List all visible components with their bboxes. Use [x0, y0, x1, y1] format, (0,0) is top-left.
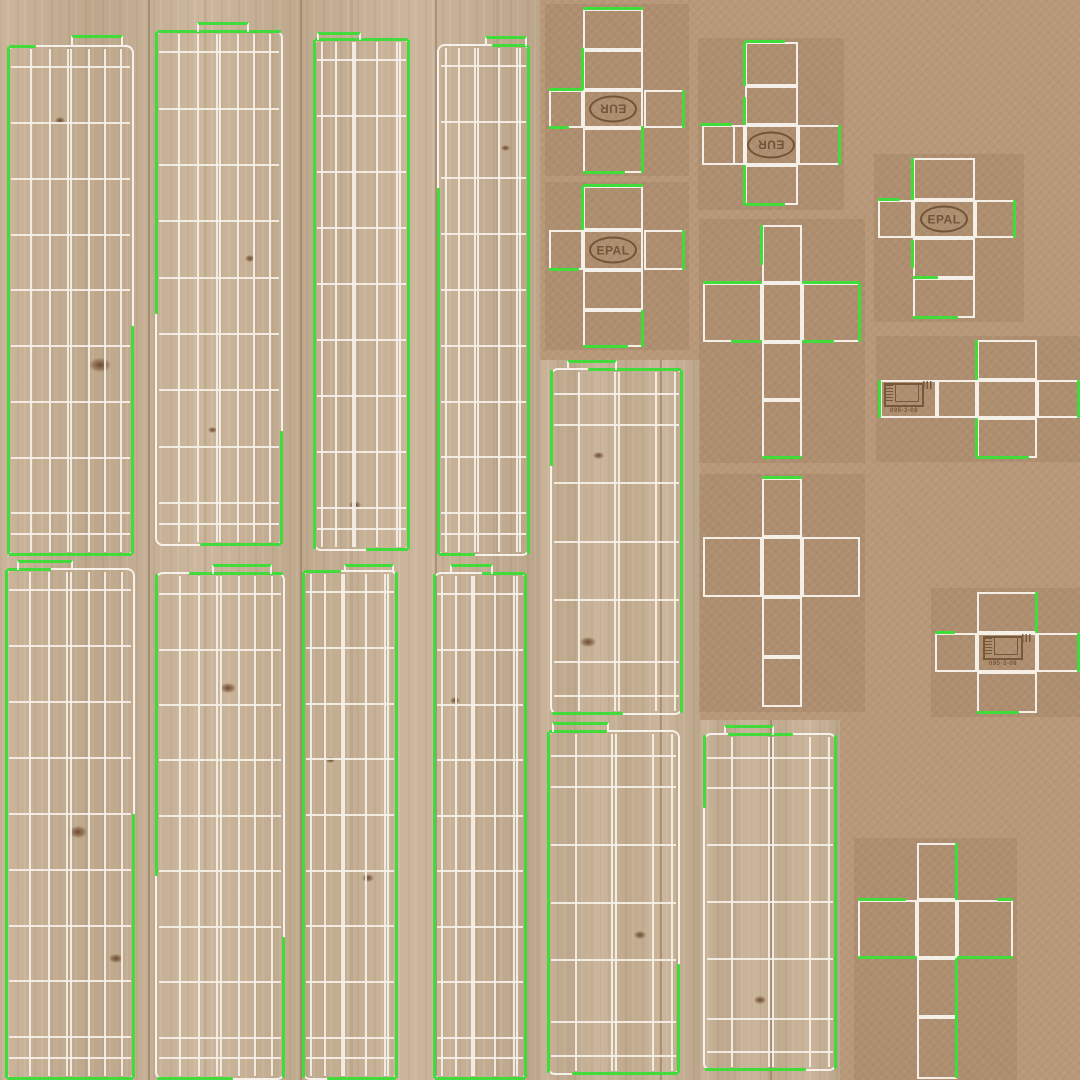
uv-grid-line-vertical: [458, 48, 460, 552]
uv-grid-line-horizontal: [306, 591, 394, 593]
uv-grid-line-horizontal: [159, 704, 281, 706]
uv-grid-line-horizontal: [441, 456, 526, 458]
uv-grid-line-horizontal: [441, 533, 526, 535]
uv-grid-line-vertical: [399, 42, 401, 547]
uv-grid-line-vertical: [104, 49, 106, 552]
uv-seam-edge: [583, 184, 643, 187]
plank-uv-top-tab: [450, 564, 493, 574]
uv-seam-edge: [550, 370, 553, 466]
uv-grid-line-vertical: [271, 576, 273, 1076]
uv-seam-edge: [407, 40, 410, 549]
eur-stamp: EUR: [747, 132, 795, 159]
uv-grid-line-horizontal: [441, 289, 526, 291]
uv-grid-line-horizontal: [707, 757, 833, 759]
plank-uv-island: [703, 733, 837, 1071]
uv-grid-line-horizontal: [551, 1055, 676, 1057]
uv-seam-edge: [955, 958, 958, 1078]
uv-seam-edge: [975, 418, 978, 458]
uv-grid-line-horizontal: [437, 815, 523, 817]
block-uv-cell: [977, 672, 1037, 713]
block-uv-cell: [583, 310, 643, 347]
uv-grid-line-vertical: [376, 42, 378, 547]
uv-grid-line-horizontal: [9, 869, 131, 871]
cert-stamp-inner-square: [994, 637, 1018, 655]
uv-grid-line-horizontal: [159, 981, 281, 983]
block-uv-cell: [957, 900, 1013, 958]
block-uv-cell: [878, 200, 913, 238]
uv-seam-edge: [5, 570, 8, 1078]
uv-grid-line-vertical: [494, 576, 496, 1076]
block-uv-cell: [549, 230, 583, 270]
plank-uv-top-tab: [552, 722, 609, 732]
plank-uv-island: [433, 572, 527, 1080]
block-uv-cell: [745, 165, 798, 205]
uv-grid-line-horizontal: [9, 701, 131, 703]
uv-seam-edge: [132, 814, 135, 1078]
uv-seam-edge: [955, 843, 958, 900]
uv-grid-line-horizontal: [437, 1057, 523, 1059]
uv-grid-line-horizontal: [317, 339, 406, 341]
uv-grid-line-horizontal: [159, 502, 279, 504]
block-uv-cell: [703, 283, 762, 342]
uv-seam-edge: [313, 40, 316, 549]
uv-seam-edge: [302, 572, 305, 1078]
uv-grid-line-horizontal: [437, 704, 523, 706]
uv-seam-edge: [802, 340, 834, 343]
uv-seam-edge: [527, 46, 530, 554]
uv-grid-line-vertical: [473, 576, 475, 1076]
uv-seam-edge: [583, 7, 643, 10]
uv-grid-line-horizontal: [159, 164, 279, 166]
plank-uv-top-tab: [344, 564, 394, 572]
uv-grid-line-horizontal: [707, 1018, 833, 1020]
plank-uv-island: [313, 38, 410, 551]
uv-grid-line-horizontal: [11, 457, 130, 459]
uv-seam-edge: [682, 230, 685, 270]
uv-seam-edge: [547, 732, 550, 1073]
uv-grid-line-vertical: [354, 42, 356, 547]
epal-stamp: EPAL: [589, 237, 637, 264]
uv-seam-edge: [572, 1072, 678, 1075]
uv-grid-line-vertical: [70, 572, 72, 1076]
block-uv-cell: [762, 478, 802, 537]
cert-stamp-lines: [886, 385, 893, 401]
uv-seam-edge: [524, 574, 527, 1078]
uv-grid-line-horizontal: [11, 533, 130, 535]
block-uv-cell: [1037, 380, 1080, 418]
uv-seam-edge: [838, 125, 841, 165]
uv-grid-line-horizontal: [306, 925, 394, 927]
uv-seam-edge: [743, 97, 746, 125]
block-uv-cell: [917, 843, 957, 900]
uv-grid-line-horizontal: [11, 178, 130, 180]
uv-grid-line-horizontal: [437, 926, 523, 928]
uv-grid-line-horizontal: [306, 1057, 394, 1059]
uv-grid-line-vertical: [216, 34, 218, 542]
uv-grid-line-horizontal: [707, 901, 833, 903]
uv-grid-line-vertical: [477, 48, 479, 552]
block-uv-cell: [917, 1017, 957, 1079]
uv-seam-edge: [913, 276, 938, 279]
uv-seam-edge: [641, 310, 644, 347]
uv-grid-line-horizontal: [441, 233, 526, 235]
uv-grid-line-horizontal: [159, 649, 281, 651]
uv-seam-edge: [997, 898, 1013, 901]
uv-grid-line-vertical: [387, 574, 389, 1076]
uv-grid-line-horizontal: [159, 759, 281, 761]
uv-grid-line-horizontal: [707, 958, 833, 960]
uv-grid-line-vertical: [335, 42, 337, 547]
uv-grid-line-vertical: [121, 572, 123, 1076]
uv-grid-line-horizontal: [437, 1037, 523, 1039]
uv-seam-edge: [858, 898, 906, 901]
uv-grid-line-horizontal: [159, 1037, 281, 1039]
uv-grid-line-vertical: [498, 48, 500, 552]
plank-uv-island: [7, 45, 134, 556]
plank-uv-island: [155, 572, 285, 1080]
uv-seam-edge: [549, 88, 583, 91]
uv-grid-line-horizontal: [437, 870, 523, 872]
cert-stamp-inner-square: [895, 384, 919, 402]
uv-grid-line-vertical: [269, 34, 271, 542]
uv-grid-line-horizontal: [551, 844, 676, 846]
uv-grid-line-vertical: [197, 34, 199, 542]
uv-grid-line-vertical: [310, 574, 312, 1076]
uv-grid-line-vertical: [254, 576, 256, 1076]
block-uv-cell: [583, 9, 643, 50]
uv-grid-line-horizontal: [554, 541, 679, 543]
uv-grid-line-horizontal: [437, 649, 523, 651]
uv-grid-line-horizontal: [9, 980, 131, 982]
plank-uv-top-tab: [17, 560, 73, 570]
uv-grid-line-vertical: [237, 34, 239, 542]
uv-grid-line-horizontal: [159, 277, 279, 279]
uv-seam-edge: [9, 553, 132, 556]
uv-grid-line-vertical: [253, 34, 255, 542]
uv-seam-edge: [911, 158, 914, 200]
uv-grid-line-horizontal: [441, 177, 526, 179]
uv-grid-line-vertical: [104, 572, 106, 1076]
block-uv-cell: [913, 238, 975, 278]
uv-seam-edge: [282, 937, 285, 1078]
uv-seam-edge: [745, 40, 785, 43]
uv-seam-edge: [680, 370, 683, 713]
uv-seam-edge: [581, 186, 584, 230]
uv-grid-line-vertical: [343, 574, 345, 1076]
uv-seam-edge: [395, 572, 398, 1078]
uv-grid-line-horizontal: [554, 482, 679, 484]
uv-grid-line-vertical: [516, 576, 518, 1076]
uv-seam-edge: [280, 431, 283, 544]
uv-grid-line-vertical: [179, 576, 181, 1076]
block-uv-cell: [917, 958, 957, 1017]
uv-grid-line-horizontal: [9, 1057, 131, 1059]
uv-grid-line-vertical: [88, 49, 90, 552]
uv-seam-edge: [802, 281, 860, 284]
plank-uv-island: [155, 30, 283, 546]
uv-grid-line-vertical: [120, 49, 122, 552]
uv-grid-line-horizontal: [9, 589, 131, 591]
plank-uv-island: [547, 730, 680, 1075]
plank-uv-island: [437, 44, 530, 556]
cert-stamp-code: 095-3-08: [884, 408, 924, 414]
uv-seam-edge: [641, 126, 644, 173]
block-uv-cell: [733, 125, 745, 165]
uv-seam-edge: [743, 165, 746, 205]
block-uv-cell: [975, 200, 1015, 238]
uv-seam-edge: [155, 574, 158, 876]
uv-grid-line-horizontal: [159, 926, 281, 928]
plank-uv-top-tab: [724, 725, 774, 735]
uv-grid-line-horizontal: [9, 645, 131, 647]
uv-grid-line-horizontal: [159, 446, 279, 448]
uv-seam-edge: [200, 543, 281, 546]
uv-grid-line-horizontal: [11, 401, 130, 403]
uv-grid-line-horizontal: [554, 393, 679, 395]
block-uv-cell: [913, 158, 975, 200]
uv-grid-line-horizontal: [9, 757, 131, 759]
uv-grid-line-horizontal: [306, 703, 394, 705]
uv-grid-line-horizontal: [306, 870, 394, 872]
uv-grid-line-vertical: [324, 574, 326, 1076]
uv-grid-line-horizontal: [441, 65, 526, 67]
uv-grid-line-horizontal: [317, 227, 406, 229]
uv-grid-line-horizontal: [551, 902, 676, 904]
uv-seam-edge: [682, 90, 685, 128]
uv-grid-line-horizontal: [306, 647, 394, 649]
uv-seam-edge: [745, 203, 785, 206]
block-uv-cell: [977, 592, 1037, 633]
uv-grid-line-horizontal: [554, 661, 679, 663]
uv-seam-edge: [1013, 200, 1016, 238]
uv-seam-edge: [957, 956, 1013, 959]
uv-grid-line-horizontal: [317, 395, 406, 397]
block-uv-cell: [762, 657, 802, 707]
uv-seam-edge: [549, 268, 579, 271]
block-uv-cell: [644, 90, 685, 128]
uv-grid-line-horizontal: [554, 599, 679, 601]
block-uv-cell: [745, 86, 798, 125]
uv-grid-line-horizontal: [554, 424, 679, 426]
uv-grid-line-vertical: [220, 576, 222, 1076]
uv-grid-line-horizontal: [11, 66, 130, 68]
block-uv-cell: [762, 225, 802, 283]
uv-grid-line-horizontal: [317, 528, 406, 530]
uv-grid-line-vertical: [219, 34, 221, 542]
plank-uv-top-tab: [71, 35, 123, 47]
uv-grid-line-vertical: [238, 576, 240, 1076]
block-uv-cell: [583, 50, 643, 90]
plank-uv-island: [302, 570, 398, 1080]
uv-grid-line-horizontal: [707, 787, 833, 789]
uv-seam-edge: [703, 281, 762, 284]
uv-grid-line-vertical: [321, 42, 323, 547]
cert-stamp-code: 095-3-08: [983, 661, 1023, 667]
block-uv-cell: [937, 380, 977, 418]
plank-uv-top-tab: [212, 564, 272, 574]
block-uv-cell: [1037, 633, 1080, 672]
block-uv-cell: [549, 90, 583, 128]
uv-seam-edge: [583, 171, 625, 174]
uv-grid-line-vertical: [384, 574, 386, 1076]
uv-grid-line-vertical: [178, 34, 180, 542]
block-uv-cell: [977, 380, 1037, 418]
uv-grid-line-vertical: [513, 576, 515, 1076]
uv-grid-line-vertical: [67, 49, 69, 552]
block-uv-cell: [935, 633, 977, 672]
uv-grid-line-vertical: [365, 574, 367, 1076]
uv-seam-edge: [677, 964, 680, 1073]
uv-grid-line-horizontal: [707, 1051, 833, 1053]
uv-seam-edge: [437, 188, 440, 554]
uv-seam-edge: [700, 123, 732, 126]
block-uv-cell: [913, 278, 975, 318]
uv-grid-line-horizontal: [551, 1021, 676, 1023]
cert-stamp: 095-3-08: [983, 636, 1031, 668]
uv-grid-line-vertical: [66, 572, 68, 1076]
block-uv-cell: [798, 125, 840, 165]
plank-uv-top-tab: [485, 36, 527, 46]
uv-grid-line-horizontal: [9, 925, 131, 927]
uv-grid-line-horizontal: [551, 755, 676, 757]
uv-grid-line-horizontal: [306, 814, 394, 816]
plank-uv-island: [550, 368, 683, 715]
uv-grid-line-vertical: [216, 576, 218, 1076]
block-uv-cell: [977, 418, 1037, 458]
uv-grid-line-horizontal: [159, 333, 279, 335]
uv-grid-line-horizontal: [317, 115, 406, 117]
uv-grid-line-horizontal: [159, 220, 279, 222]
uv-seam-edge: [705, 1068, 806, 1071]
block-uv-cell: [703, 537, 762, 597]
uv-grid-line-horizontal: [317, 59, 406, 61]
uv-grid-line-horizontal: [159, 593, 281, 595]
uv-seam-edge: [703, 735, 706, 808]
uv-grid-line-vertical: [88, 572, 90, 1076]
uv-grid-line-horizontal: [437, 981, 523, 983]
uv-grid-line-horizontal: [11, 122, 130, 124]
uv-seam-edge: [7, 47, 10, 554]
uv-grid-line-vertical: [441, 576, 443, 1076]
uv-grid-line-vertical: [396, 42, 398, 547]
cert-stamp-lines: [985, 638, 992, 654]
block-uv-cell: [745, 42, 798, 86]
uv-seam-edge: [1035, 592, 1038, 633]
uv-grid-line-horizontal: [159, 870, 281, 872]
cert-stamp-mark: [923, 381, 932, 389]
epal-stamp: EPAL: [920, 206, 968, 233]
uv-grid-line-horizontal: [441, 121, 526, 123]
uv-grid-line-horizontal: [441, 345, 526, 347]
uv-grid-line-horizontal: [306, 1037, 394, 1039]
uv-seam-edge: [9, 45, 36, 48]
uv-grid-line-horizontal: [317, 451, 406, 453]
uv-seam-edge: [913, 316, 958, 319]
uv-grid-line-horizontal: [306, 758, 394, 760]
block-uv-cell: [762, 283, 802, 342]
uv-grid-line-vertical: [519, 48, 521, 552]
block-uv-cell: [802, 283, 860, 342]
uv-seam-edge: [549, 126, 569, 129]
uv-seam-edge: [762, 456, 802, 459]
block-uv-cell: [858, 900, 917, 958]
uv-seam-edge: [834, 735, 837, 1069]
uv-seam-edge: [762, 476, 802, 479]
uv-seam-edge: [731, 340, 762, 343]
uv-grid-line-vertical: [445, 48, 447, 552]
block-uv-cell: [762, 597, 802, 657]
plank-uv-top-tab: [197, 22, 249, 32]
uv-grid-line-vertical: [455, 576, 457, 1076]
plank-uv-island: [5, 568, 135, 1080]
uv-seam-edge: [743, 42, 746, 86]
uv-grid-line-horizontal: [437, 593, 523, 595]
uv-grid-line-horizontal: [159, 108, 279, 110]
uv-seam-edge: [977, 711, 1019, 714]
uv-grid-line-horizontal: [551, 786, 676, 788]
uv-grid-line-horizontal: [11, 289, 130, 291]
cert-stamp: 095-3-08: [884, 383, 932, 415]
plank-uv-top-tab: [317, 32, 361, 40]
uv-grid-line-horizontal: [159, 51, 279, 53]
uv-seam-edge: [975, 340, 978, 380]
uv-grid-line-horizontal: [437, 759, 523, 761]
block-uv-cell: [917, 900, 957, 958]
block-uv-cell: [583, 186, 643, 230]
block-uv-cell: [762, 400, 802, 458]
uv-grid-line-horizontal: [11, 345, 130, 347]
uv-grid-line-vertical: [198, 576, 200, 1076]
uv-grid-line-horizontal: [441, 401, 526, 403]
uv-seam-edge: [304, 570, 341, 573]
uv-seam-edge: [581, 48, 584, 90]
uv-seam-edge: [433, 574, 436, 1078]
uv-grid-line-vertical: [70, 49, 72, 552]
uv-seam-edge: [439, 553, 475, 556]
uv-grid-line-horizontal: [11, 234, 130, 236]
plank-uv-top-tab: [567, 360, 617, 370]
eur-stamp: EUR: [589, 96, 637, 123]
uv-seam-edge: [858, 283, 861, 342]
uv-grid-line-horizontal: [441, 512, 526, 514]
uv-seam-edge: [760, 225, 763, 265]
uv-seam-edge: [858, 956, 917, 959]
uv-grid-line-horizontal: [317, 171, 406, 173]
uv-seam-edge: [977, 456, 1029, 459]
uv-grid-line-horizontal: [306, 981, 394, 983]
uv-seam-edge: [935, 631, 955, 634]
uv-seam-edge: [131, 326, 134, 554]
cert-stamp-mark: [1022, 634, 1031, 642]
uv-grid-line-horizontal: [554, 695, 679, 697]
block-uv-cell: [644, 230, 685, 270]
uv-grid-line-vertical: [29, 572, 31, 1076]
uv-seam-edge: [155, 32, 158, 314]
uv-grid-line-vertical: [48, 572, 50, 1076]
uv-seam-edge: [552, 712, 623, 715]
wood-plank-seam: [148, 0, 150, 1080]
uv-grid-line-horizontal: [159, 523, 279, 525]
uv-grid-line-horizontal: [551, 959, 676, 961]
block-uv-cell: [762, 537, 802, 597]
uv-grid-line-horizontal: [159, 389, 279, 391]
uv-grid-line-horizontal: [317, 283, 406, 285]
block-uv-cell: [977, 340, 1037, 380]
block-uv-cell: [583, 128, 643, 173]
block-uv-cell: [762, 342, 802, 400]
uv-grid-line-horizontal: [9, 1036, 131, 1038]
uv-grid-line-horizontal: [159, 815, 281, 817]
